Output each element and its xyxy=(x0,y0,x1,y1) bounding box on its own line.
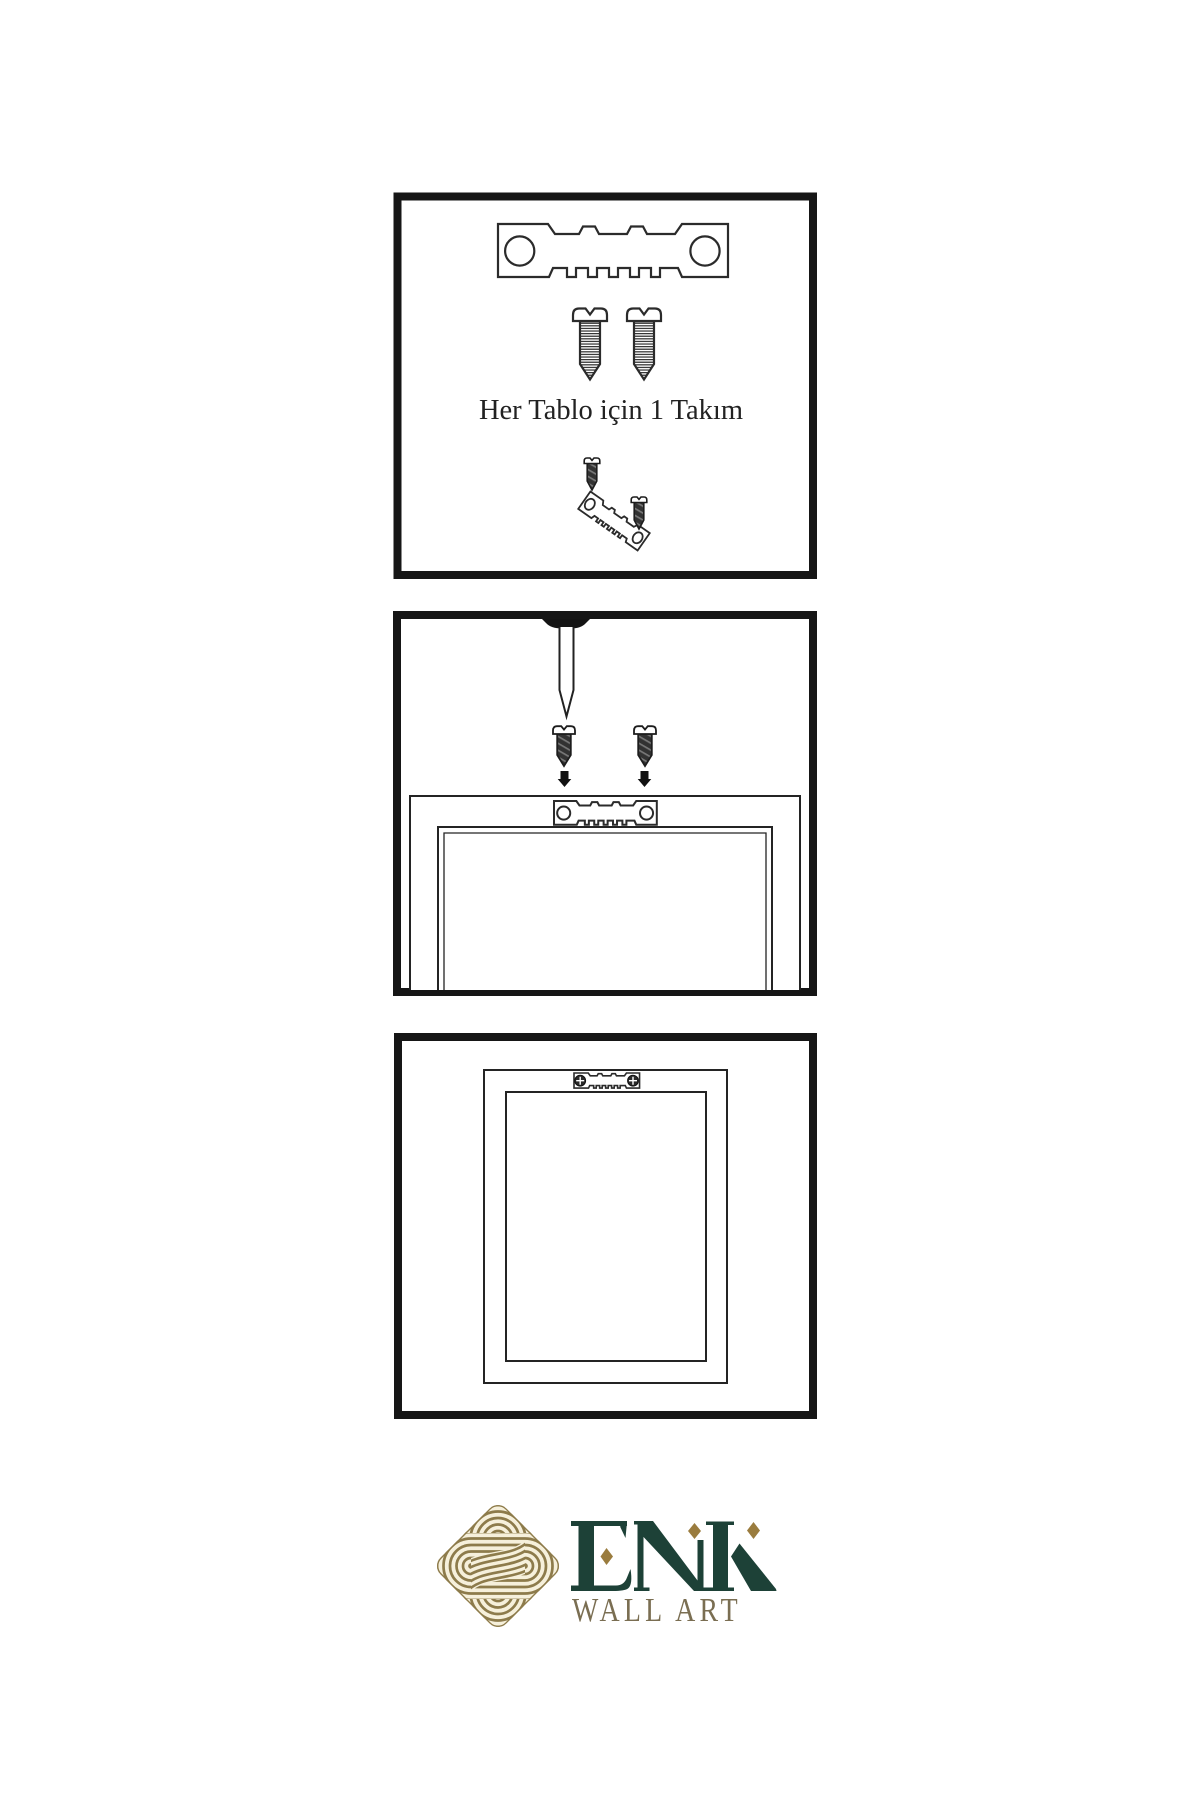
svg-text:Her Tablo için 1 Takım: Her Tablo için 1 Takım xyxy=(479,395,743,426)
svg-text:WALL ART: WALL ART xyxy=(572,1590,742,1628)
